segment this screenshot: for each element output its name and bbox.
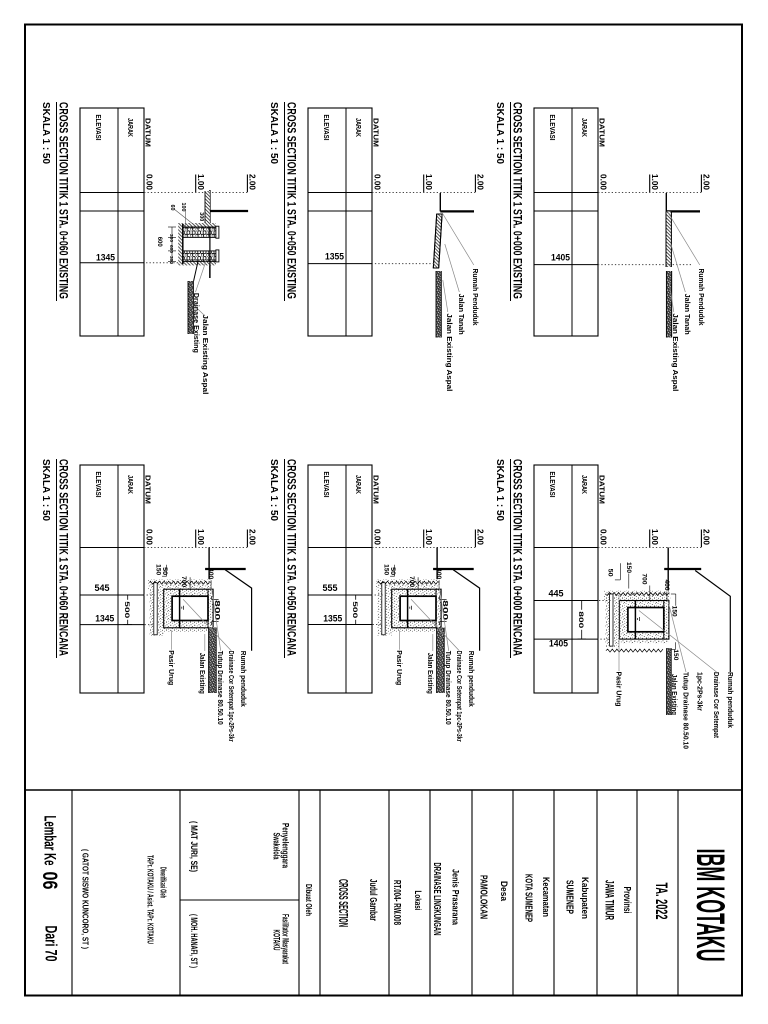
svg-text:DATUM: DATUM bbox=[144, 475, 151, 504]
svg-text:Jalan Existing Aspal: Jalan Existing Aspal bbox=[671, 313, 680, 391]
svg-text:DATUM: DATUM bbox=[598, 118, 605, 147]
svg-text:Drainase Cor Setempat 1pc-2Ps-: Drainase Cor Setempat 1pc-2Ps-3kr bbox=[455, 651, 464, 742]
svg-text:1405: 1405 bbox=[549, 639, 569, 650]
svg-text:300: 300 bbox=[169, 234, 174, 243]
svg-text:1355: 1355 bbox=[323, 614, 343, 625]
svg-text:150: 150 bbox=[625, 562, 632, 573]
svg-text:Jalan Existing: Jalan Existing bbox=[670, 674, 679, 715]
svg-text:06: 06 bbox=[38, 872, 61, 890]
svg-text:Dari 70: Dari 70 bbox=[42, 926, 60, 962]
svg-text:300: 300 bbox=[198, 212, 204, 221]
svg-text:SKALA 1 : 50: SKALA 1 : 50 bbox=[268, 102, 280, 164]
svg-text:ELEVASI: ELEVASI bbox=[94, 115, 103, 141]
svg-text:0.00: 0.00 bbox=[145, 529, 154, 546]
svg-text:600: 600 bbox=[169, 245, 174, 254]
svg-text:1.00: 1.00 bbox=[650, 529, 659, 546]
svg-text:Jalan Existing: Jalan Existing bbox=[426, 653, 435, 694]
svg-text:2.00: 2.00 bbox=[248, 174, 257, 191]
svg-text:( MOH. HANAFI, ST ): ( MOH. HANAFI, ST ) bbox=[189, 914, 199, 968]
svg-text:Jalan Existing: Jalan Existing bbox=[198, 653, 207, 694]
svg-text:CROSS SECTION: CROSS SECTION bbox=[336, 879, 351, 927]
svg-text:CROSS SECTION TITIK 1 STA. 0+0: CROSS SECTION TITIK 1 STA. 0+000 RENCANA bbox=[511, 459, 523, 656]
svg-text:CROSS SECTION TITIK 1 STA. 0+0: CROSS SECTION TITIK 1 STA. 0+060 RENCANA bbox=[57, 459, 69, 656]
svg-text:Jalan Tanah: Jalan Tanah bbox=[457, 294, 466, 335]
svg-text:Jalan Existing Aspal: Jalan Existing Aspal bbox=[201, 314, 210, 394]
svg-text:700: 700 bbox=[180, 576, 187, 587]
svg-text:JARAK: JARAK bbox=[354, 118, 363, 137]
svg-text:100: 100 bbox=[180, 203, 186, 212]
svg-text:1.00: 1.00 bbox=[424, 529, 433, 546]
svg-text:700: 700 bbox=[408, 576, 415, 587]
svg-text:Jenis Prasarana: Jenis Prasarana bbox=[450, 869, 461, 926]
svg-text:0.00: 0.00 bbox=[599, 529, 608, 546]
svg-text:50: 50 bbox=[607, 569, 614, 577]
svg-text:Tutup Drainase 80.50.10: Tutup Drainase 80.50.10 bbox=[682, 672, 691, 749]
svg-text:Rumah penduduk: Rumah penduduk bbox=[239, 651, 248, 707]
svg-text:Desa: Desa bbox=[499, 881, 509, 902]
svg-text:CROSS SECTION TITIK 1 STA. 0+0: CROSS SECTION TITIK 1 STA. 0+060 EXISTIN… bbox=[57, 102, 69, 299]
svg-text:555: 555 bbox=[323, 583, 339, 594]
svg-text:JARAK: JARAK bbox=[354, 475, 363, 494]
svg-text:ELEVASI: ELEVASI bbox=[322, 115, 331, 141]
svg-text:Rumah Penduduk: Rumah Penduduk bbox=[471, 269, 480, 326]
svg-text:DATUM: DATUM bbox=[372, 118, 379, 147]
svg-text:JARAK: JARAK bbox=[580, 118, 589, 137]
svg-text:( MAT JURI, SE): ( MAT JURI, SE) bbox=[189, 821, 199, 872]
svg-text:500: 500 bbox=[123, 601, 130, 618]
svg-text:RT.004- RW.008: RT.004- RW.008 bbox=[391, 880, 402, 925]
svg-text:ELEVASI: ELEVASI bbox=[94, 472, 103, 498]
svg-text:1405: 1405 bbox=[551, 253, 571, 264]
svg-text:DATUM: DATUM bbox=[372, 475, 379, 504]
svg-text:DRAINASE LINGKUNGAN: DRAINASE LINGKUNGAN bbox=[431, 863, 443, 936]
svg-text:SUMENEP: SUMENEP bbox=[564, 880, 575, 914]
svg-text:2.00: 2.00 bbox=[476, 174, 485, 191]
svg-text:445: 445 bbox=[549, 589, 565, 600]
svg-text:60: 60 bbox=[169, 205, 175, 211]
svg-text:0.00: 0.00 bbox=[373, 174, 382, 191]
svg-text:Rumah penduduk: Rumah penduduk bbox=[467, 651, 476, 707]
svg-text:KOTAKU: KOTAKU bbox=[272, 930, 282, 951]
svg-text:Drainase Cor Setempat 1pc-2Ps-: Drainase Cor Setempat 1pc-2Ps-3kr bbox=[227, 651, 236, 742]
svg-text:TA. 2022: TA. 2022 bbox=[652, 883, 670, 920]
svg-text:ELEVASI: ELEVASI bbox=[548, 115, 557, 141]
svg-text:400: 400 bbox=[663, 580, 670, 591]
svg-text:ELEVASI: ELEVASI bbox=[322, 472, 331, 498]
svg-text:Swakelola: Swakelola bbox=[272, 833, 282, 861]
svg-text:Dibuat Oleh: Dibuat Oleh bbox=[304, 884, 314, 916]
svg-text:SKALA 1 : 50: SKALA 1 : 50 bbox=[494, 102, 506, 164]
svg-text:Kecamatan: Kecamatan bbox=[540, 877, 551, 917]
svg-text:Jalan Existing Aspal: Jalan Existing Aspal bbox=[445, 313, 454, 391]
svg-text:SKALA 1 : 50: SKALA 1 : 50 bbox=[268, 459, 280, 521]
svg-text:CROSS SECTION TITIK 1 STA. 0+0: CROSS SECTION TITIK 1 STA. 0+050 RENCANA bbox=[285, 459, 297, 656]
svg-text:400: 400 bbox=[435, 568, 442, 579]
svg-text:JARAK: JARAK bbox=[126, 475, 135, 494]
svg-text:545: 545 bbox=[95, 583, 111, 594]
svg-text:1345: 1345 bbox=[96, 252, 116, 263]
svg-text:1.00: 1.00 bbox=[196, 174, 205, 191]
svg-text:1355: 1355 bbox=[325, 252, 345, 263]
svg-text:Rumah penduduk: Rumah penduduk bbox=[726, 672, 735, 728]
svg-text:SKALA 1 : 50: SKALA 1 : 50 bbox=[40, 459, 52, 521]
svg-text:0.00: 0.00 bbox=[373, 529, 382, 546]
svg-text:IBM KOTAKU: IBM KOTAKU bbox=[688, 849, 732, 962]
svg-text:DATUM: DATUM bbox=[144, 118, 151, 147]
svg-text:300: 300 bbox=[169, 256, 174, 265]
svg-text:1.00: 1.00 bbox=[650, 174, 659, 191]
svg-text:2.00: 2.00 bbox=[248, 529, 257, 546]
svg-text:150: 150 bbox=[672, 649, 679, 661]
svg-text:500: 500 bbox=[351, 601, 358, 618]
svg-text:Provinsi: Provinsi bbox=[621, 887, 632, 914]
svg-text:Pasir Urug: Pasir Urug bbox=[167, 650, 176, 685]
svg-text:SKALA 1 : 50: SKALA 1 : 50 bbox=[494, 459, 506, 521]
svg-text:Jalan Tanah: Jalan Tanah bbox=[683, 294, 692, 335]
svg-text:800: 800 bbox=[577, 611, 584, 628]
svg-text:Rumah Penduduk: Rumah Penduduk bbox=[697, 269, 706, 326]
svg-text:DATUM: DATUM bbox=[598, 475, 605, 504]
svg-text:2.00: 2.00 bbox=[702, 174, 711, 191]
svg-text:150: 150 bbox=[383, 564, 390, 575]
svg-text:0.00: 0.00 bbox=[599, 174, 608, 191]
svg-text:SKALA 1 : 50: SKALA 1 : 50 bbox=[40, 102, 52, 164]
svg-text:Judul Gambar: Judul Gambar bbox=[367, 879, 378, 921]
svg-text:Pasir Urug: Pasir Urug bbox=[615, 672, 624, 707]
svg-text:1pc-2Ps-3kr: 1pc-2Ps-3kr bbox=[696, 672, 705, 711]
svg-text:TAPr. KOTAKU / Asist. TAPr. KO: TAPr. KOTAKU / Asist. TAPr. KOTAKU bbox=[146, 855, 155, 944]
svg-text:Drainase Cor Setempat: Drainase Cor Setempat bbox=[712, 672, 721, 739]
svg-text:Tutup Drainase 80.50.10: Tutup Drainase 80.50.10 bbox=[216, 651, 225, 725]
svg-text:Lokasi: Lokasi bbox=[412, 891, 423, 911]
svg-text:CROSS SECTION TITIK 1 STA. 0+0: CROSS SECTION TITIK 1 STA. 0+000 EXISTIN… bbox=[511, 102, 523, 299]
svg-text:1345: 1345 bbox=[95, 614, 115, 625]
svg-text:2.00: 2.00 bbox=[702, 529, 711, 546]
svg-text:600: 600 bbox=[156, 237, 162, 248]
svg-text:JARAK: JARAK bbox=[126, 118, 135, 137]
svg-text:KOTA SUMENEP: KOTA SUMENEP bbox=[523, 874, 534, 922]
svg-text:JAWA TIMUR: JAWA TIMUR bbox=[603, 880, 617, 920]
svg-text:1.00: 1.00 bbox=[424, 174, 433, 191]
svg-text:400: 400 bbox=[207, 568, 214, 579]
svg-text:700: 700 bbox=[640, 574, 647, 585]
svg-text:1.00: 1.00 bbox=[196, 529, 205, 546]
svg-text:CROSS SECTION TITIK 1 STA. 0+0: CROSS SECTION TITIK 1 STA. 0+050 EXISTIN… bbox=[285, 102, 297, 299]
svg-text:Diverifikasi Oleh: Diverifikasi Oleh bbox=[159, 867, 168, 898]
svg-text:Lembar Ke: Lembar Ke bbox=[41, 816, 59, 866]
svg-text:PAMOLOKAN: PAMOLOKAN bbox=[478, 875, 489, 919]
svg-text:800: 800 bbox=[213, 600, 222, 620]
svg-text:Kabupaten: Kabupaten bbox=[579, 877, 590, 919]
svg-text:0.00: 0.00 bbox=[145, 174, 154, 191]
svg-text:( GATOT SISWO KUNCORO, ST ): ( GATOT SISWO KUNCORO, ST ) bbox=[81, 849, 91, 949]
svg-text:Tutup Drainase 80.50.10: Tutup Drainase 80.50.10 bbox=[444, 651, 453, 725]
svg-text:800: 800 bbox=[441, 600, 450, 620]
svg-text:Pasir Urug: Pasir Urug bbox=[395, 650, 404, 685]
svg-text:Drainase Existing: Drainase Existing bbox=[192, 293, 201, 353]
svg-text:ELEVASI: ELEVASI bbox=[548, 472, 557, 498]
svg-text:JARAK: JARAK bbox=[580, 475, 589, 494]
svg-text:2.00: 2.00 bbox=[476, 529, 485, 546]
svg-text:150: 150 bbox=[155, 564, 162, 575]
